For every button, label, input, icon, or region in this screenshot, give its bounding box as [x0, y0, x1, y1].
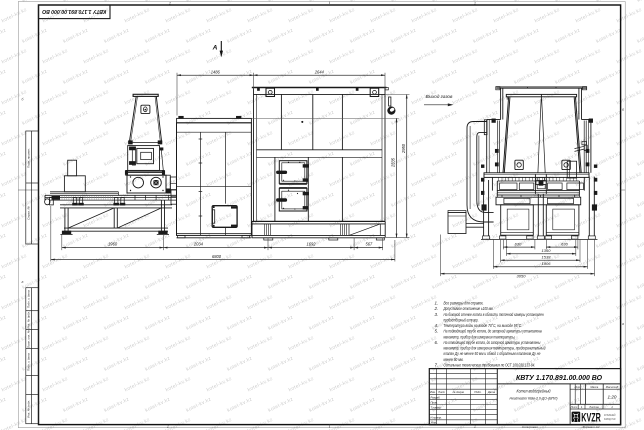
svg-text:Подп.: Подп.	[474, 390, 481, 394]
svg-text:клапан Ду не менее 50 мм и обв: клапан Ду не менее 50 мм и обвод с обрат…	[444, 351, 541, 356]
svg-text:Подп. и дата: Подп. и дата	[27, 353, 31, 371]
svg-text:На боковой стенке котла в обла: На боковой стенке котла в области топочн…	[444, 311, 545, 317]
svg-text:Допустимое отклонение ±100 мм.: Допустимое отклонение ±100 мм.	[443, 306, 494, 311]
svg-text:Масштаб: Масштаб	[606, 385, 619, 389]
svg-text:Копировал: Копировал	[522, 425, 538, 429]
svg-text:б: б	[622, 108, 624, 112]
svg-text:6800: 6800	[212, 254, 222, 259]
svg-text:Лит.: Лит.	[574, 385, 582, 389]
svg-text:Взам. инв. №: Взам. инв. №	[27, 329, 31, 348]
svg-text:1486: 1486	[211, 69, 221, 74]
svg-text:7.: 7.	[435, 362, 439, 367]
svg-text:Температура воды на входе 70°С: Температура воды на входе 70°С, на выход…	[444, 323, 523, 328]
svg-text:3050: 3050	[517, 274, 527, 279]
svg-text:б: б	[22, 98, 24, 102]
svg-text:А: А	[212, 44, 218, 51]
svg-text:Формат А2: Формат А2	[583, 425, 600, 429]
svg-text:Инв. № подл.: Инв. № подл.	[27, 400, 31, 418]
svg-text:1360: 1360	[542, 248, 552, 253]
svg-text:1906: 1906	[542, 261, 552, 266]
svg-text:2950: 2950	[401, 143, 406, 154]
svg-text:Выход газов: Выход газов	[426, 94, 453, 99]
svg-text:Все размеры для справок.: Все размеры для справок.	[444, 301, 484, 306]
svg-text:КВТУ 1.170.891.00.000 ВО: КВТУ 1.170.891.00.000 ВО	[41, 8, 106, 14]
svg-text:а: а	[22, 280, 24, 284]
svg-text:манометр, прибор для измерения: манометр, прибор для измерения температу…	[444, 334, 516, 339]
svg-text:1.: 1.	[435, 301, 439, 306]
svg-text:На отводящей трубе котла, до з: На отводящей трубе котла, до запорной ар…	[444, 339, 541, 345]
svg-text:Лист: Лист	[570, 405, 579, 409]
svg-text:менее 50 мм.: менее 50 мм.	[444, 357, 464, 362]
svg-text:KVZR: KVZR	[581, 410, 601, 424]
svg-text:3.: 3.	[435, 312, 439, 317]
svg-text:Масса: Масса	[590, 385, 598, 389]
svg-text:пробоотборный штуцер.: пробоотборный штуцер.	[444, 317, 479, 323]
svg-text:2644: 2644	[314, 69, 325, 74]
svg-text:2.: 2.	[434, 306, 439, 311]
svg-text:Разраб.: Разраб.	[431, 396, 441, 400]
svg-text:Лист: Лист	[437, 390, 446, 394]
svg-text:2: 2	[168, 1, 171, 5]
svg-text:ЗАВОД KVR: ЗАВОД KVR	[604, 417, 616, 421]
svg-text:1:20: 1:20	[608, 395, 617, 400]
svg-text:Котел водогрейный: Котел водогрейный	[517, 388, 552, 393]
svg-text:2034: 2034	[193, 242, 204, 247]
svg-text:Остальные технические требован: Остальные технические требования по ОСТ …	[444, 362, 536, 367]
svg-text:КОТЕЛЬНЫЙ: КОТЕЛЬНЫЙ	[604, 413, 616, 417]
svg-text:1: 1	[474, 1, 476, 5]
svg-text:1960: 1960	[108, 242, 118, 247]
svg-text:5.: 5.	[435, 329, 439, 334]
svg-text:Перв. примен.: Перв. примен.	[27, 148, 31, 168]
svg-text:Heatmaster КВм-2.0-ДО-(ВПЛ): Heatmaster КВм-2.0-ДО-(ВПЛ)	[510, 395, 559, 400]
svg-text:Инв. № дубл.: Инв. № дубл.	[27, 311, 31, 329]
svg-text:6.: 6.	[435, 340, 439, 345]
svg-text:№ докум.: № докум.	[453, 390, 465, 394]
svg-text:630: 630	[561, 241, 568, 246]
svg-text:Т.контр.: Т.контр.	[431, 405, 442, 409]
svg-text:567: 567	[365, 242, 373, 247]
svg-text:Утв.: Утв.	[431, 421, 437, 425]
svg-text:Справ. №: Справ. №	[27, 205, 31, 219]
svg-text:На подводящей трубе котла, до: На подводящей трубе котла, до запорной а…	[444, 328, 543, 334]
svg-text:а: а	[622, 322, 624, 326]
svg-text:1538: 1538	[542, 255, 552, 260]
svg-text:Дата: Дата	[487, 390, 496, 394]
svg-text:Изм.: Изм.	[430, 390, 436, 394]
svg-text:КВТУ 1.170.891.00.000 ВО: КВТУ 1.170.891.00.000 ВО	[516, 373, 602, 382]
svg-text:630: 630	[515, 241, 522, 246]
svg-text:Листов: Листов	[588, 405, 599, 409]
svg-text:Пров.: Пров.	[431, 400, 438, 404]
svg-text:4.: 4.	[435, 323, 439, 328]
svg-text:2: 2	[166, 425, 169, 429]
svg-text:1692: 1692	[306, 242, 316, 247]
svg-text:манометр, прибор для измерения: манометр, прибор для измерения температу…	[444, 345, 546, 351]
svg-text:2335: 2335	[391, 157, 396, 168]
svg-text:Подп. и дата: Подп. и дата	[27, 290, 31, 308]
svg-text:Н.контр.: Н.контр.	[431, 416, 443, 420]
